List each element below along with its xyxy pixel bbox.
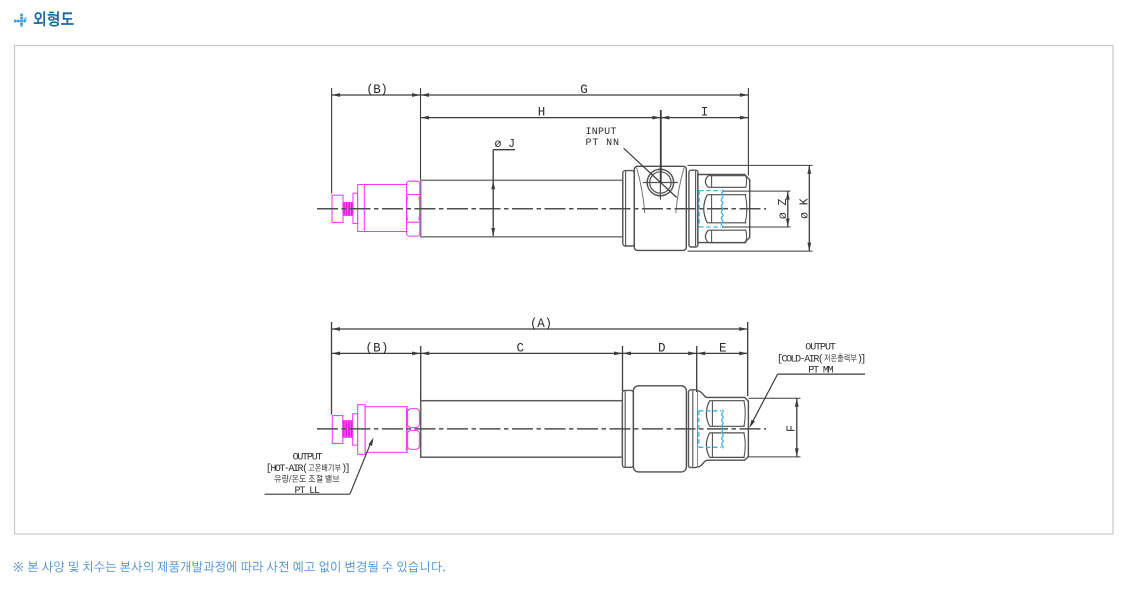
svg-text:)]: )]	[341, 463, 350, 475]
svg-text:)]: )]	[857, 353, 866, 365]
svg-text:ø K: ø K	[799, 198, 812, 219]
svg-text:PT NN: PT NN	[586, 138, 620, 149]
svg-text:PT LL: PT LL	[295, 486, 321, 497]
svg-text:INPUT: INPUT	[586, 127, 617, 138]
svg-text:(A): (A)	[530, 317, 552, 331]
svg-text:[COLD-AIR(: [COLD-AIR(	[777, 353, 824, 365]
svg-text:(B): (B)	[365, 341, 388, 355]
svg-text:OUTPUT: OUTPUT	[805, 342, 836, 353]
svg-text:E: E	[719, 341, 727, 355]
svg-text:[HOT-AIR(: [HOT-AIR(	[266, 463, 308, 475]
svg-text:H: H	[538, 106, 546, 120]
svg-text:I: I	[701, 106, 709, 120]
svg-text:G: G	[580, 83, 588, 97]
svg-text:C: C	[517, 341, 525, 355]
svg-text:F: F	[786, 425, 799, 432]
svg-text:(B): (B)	[366, 83, 388, 97]
svg-text:ø J: ø J	[495, 138, 516, 151]
svg-text:D: D	[658, 341, 666, 355]
svg-text:OUTPUT: OUTPUT	[293, 452, 323, 463]
svg-text:ø Z: ø Z	[777, 199, 790, 220]
